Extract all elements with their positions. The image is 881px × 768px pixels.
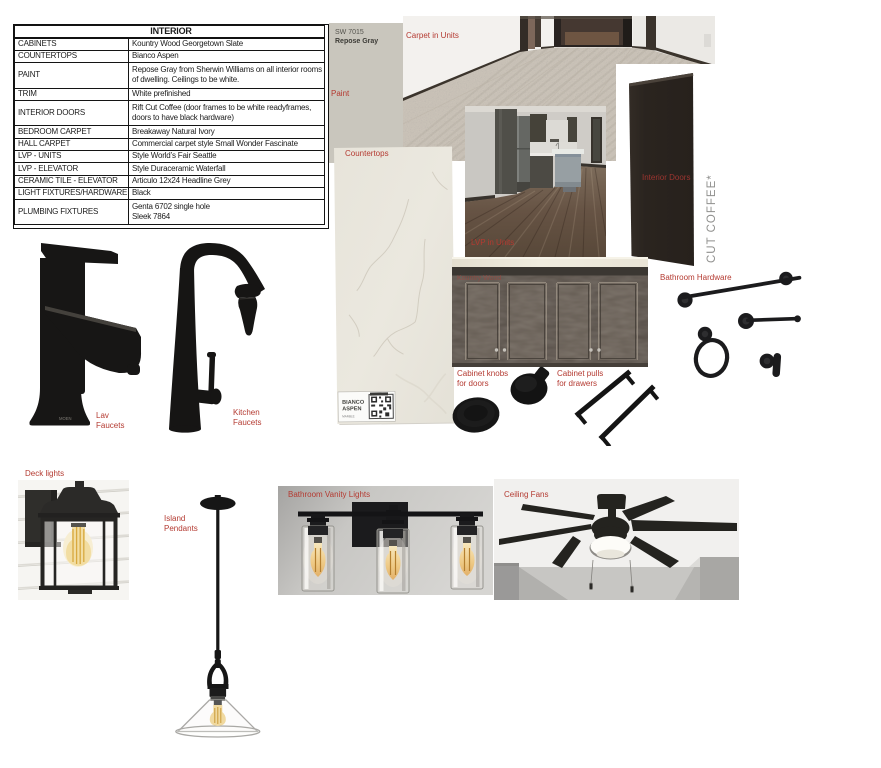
svg-text:MOEN: MOEN: [59, 416, 72, 421]
svg-text:MARBLE: MARBLE: [342, 414, 354, 418]
svg-text:Kountry Wood: Kountry Wood: [457, 275, 501, 282]
svg-text:ASPEN: ASPEN: [342, 406, 361, 412]
svg-text:BIANCO: BIANCO: [342, 400, 365, 406]
